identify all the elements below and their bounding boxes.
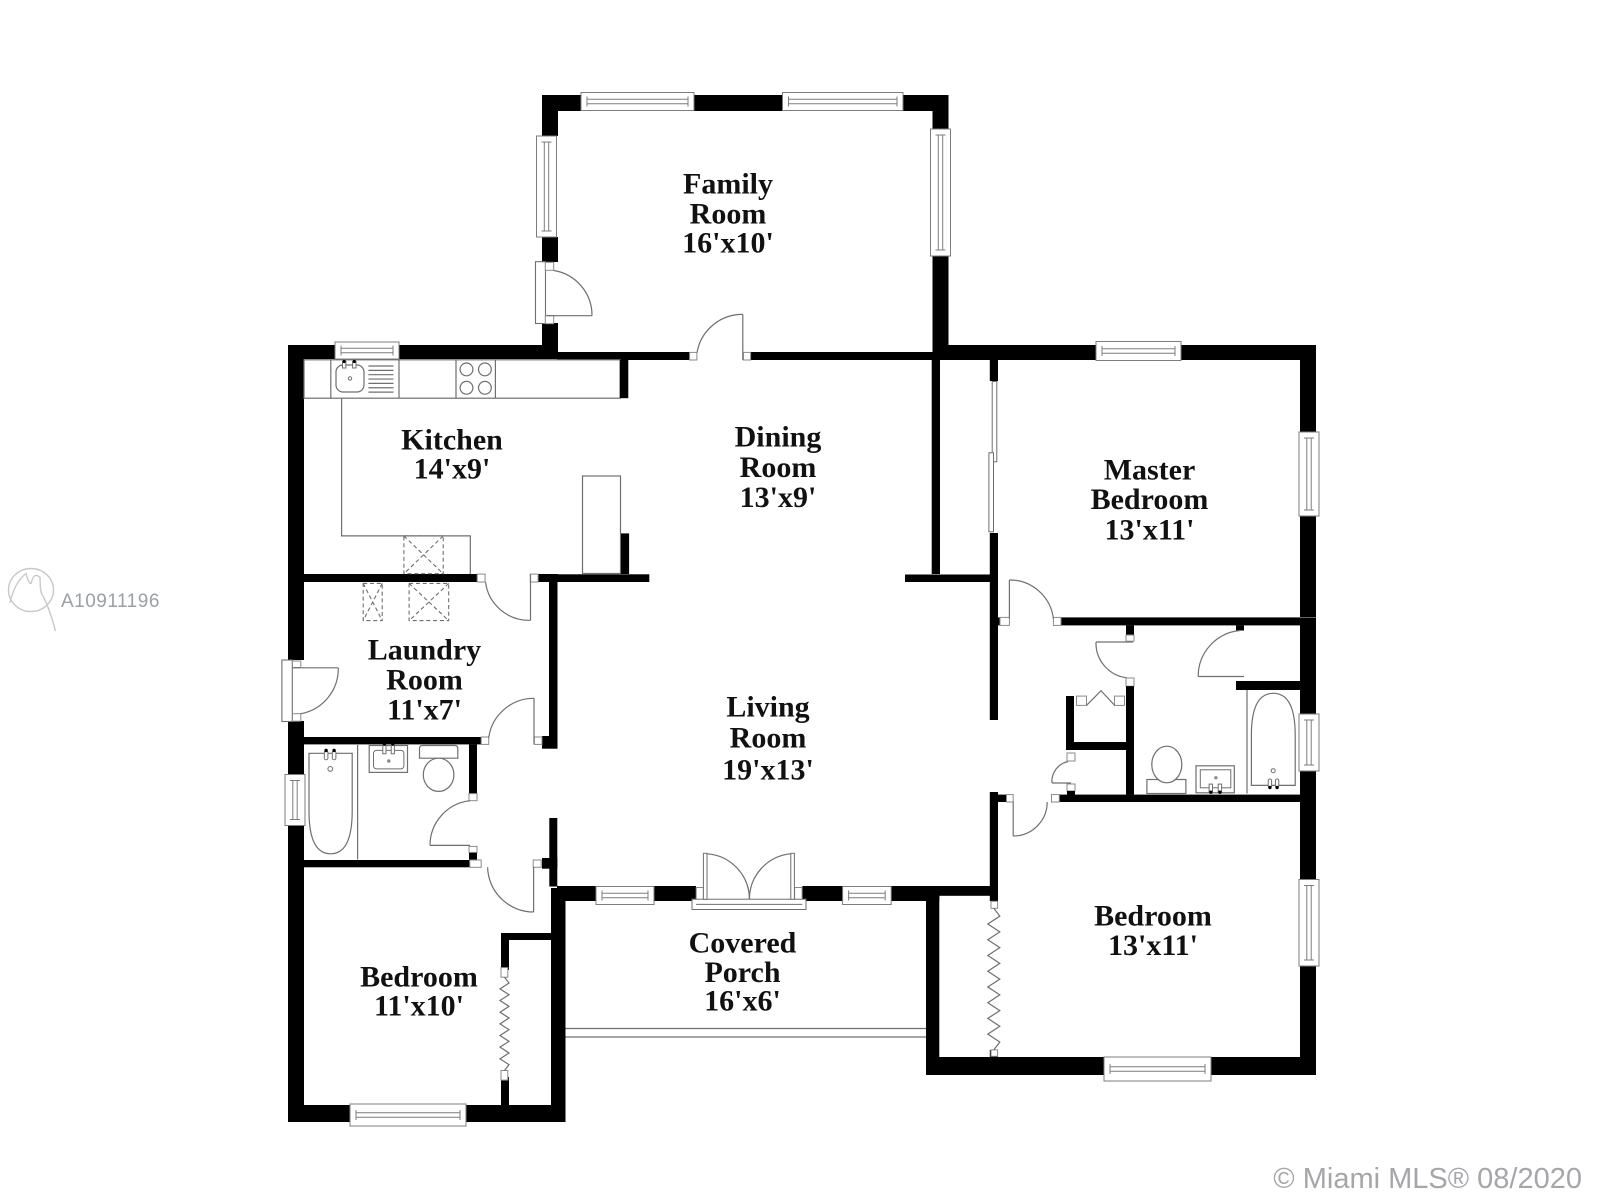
svg-text:13'x11': 13'x11' — [1108, 929, 1198, 962]
svg-text:19'x13': 19'x13' — [722, 754, 814, 787]
svg-text:16'x10': 16'x10' — [682, 227, 774, 260]
svg-text:Room: Room — [386, 664, 463, 697]
svg-text:Bedroom: Bedroom — [1091, 483, 1209, 516]
svg-text:© Miami MLS® 08/2020: © Miami MLS® 08/2020 — [1273, 1163, 1582, 1195]
svg-text:Master: Master — [1104, 454, 1196, 487]
svg-text:11'x10': 11'x10' — [374, 990, 464, 1023]
svg-text:Dining: Dining — [735, 421, 822, 454]
svg-text:Covered: Covered — [689, 927, 797, 960]
svg-text:Room: Room — [730, 722, 807, 755]
svg-text:11'x7': 11'x7' — [387, 694, 462, 727]
svg-text:13'x11': 13'x11' — [1104, 514, 1194, 547]
svg-text:Living: Living — [726, 691, 809, 724]
svg-text:Laundry: Laundry — [368, 634, 481, 667]
svg-text:16'x6': 16'x6' — [704, 985, 781, 1018]
svg-text:Kitchen: Kitchen — [401, 423, 503, 456]
svg-text:14'x9': 14'x9' — [414, 453, 491, 486]
svg-text:A10911196: A10911196 — [61, 591, 160, 612]
svg-text:13'x9': 13'x9' — [740, 481, 817, 514]
svg-text:Family: Family — [683, 168, 773, 201]
svg-text:Room: Room — [740, 451, 817, 484]
svg-text:Bedroom: Bedroom — [1094, 900, 1212, 933]
